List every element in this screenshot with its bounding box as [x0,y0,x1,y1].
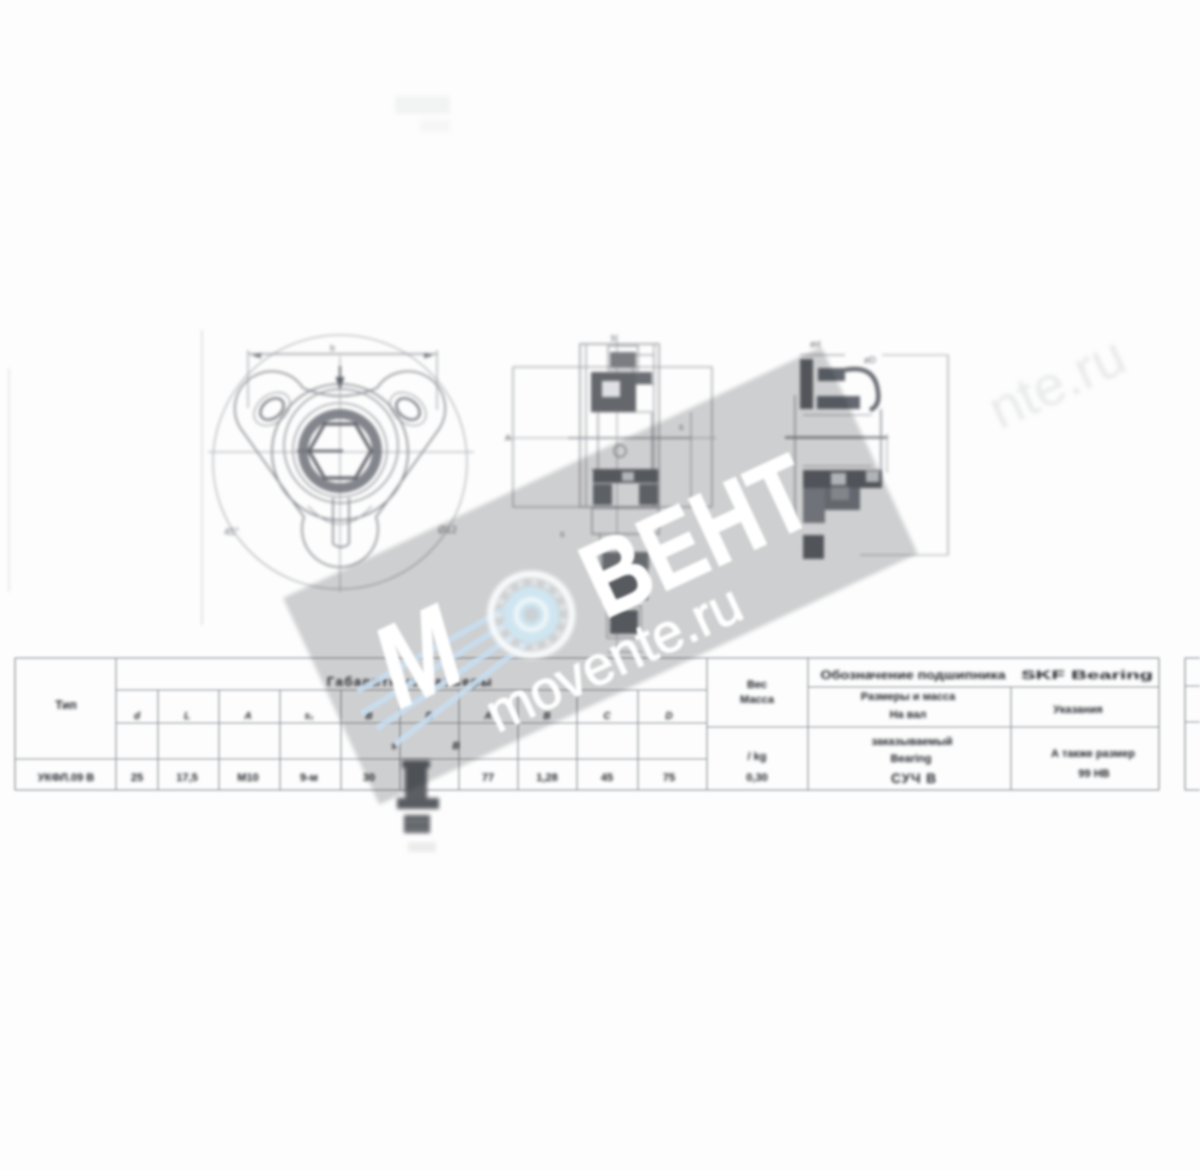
svg-text:b: b [330,343,335,353]
svg-text:C: C [603,711,611,722]
svg-text:A: A [505,433,511,443]
svg-text:СУЧ В: СУЧ В [891,771,937,786]
svg-text:М10: М10 [237,772,258,784]
svg-text:b: b [611,333,616,343]
svg-text:A: A [243,711,251,722]
svg-text:На вал: На вал [890,709,927,721]
svg-text:Масса: Масса [740,694,775,706]
svg-text:25: 25 [131,772,143,784]
svg-text:Вес: Вес [747,679,767,691]
svg-text:0,30: 0,30 [746,772,767,784]
svg-text:1,28: 1,28 [536,772,557,784]
svg-text:УКФЛ.09 В: УКФЛ.09 В [38,772,94,784]
svg-text:SKF Bearing: SKF Bearing [1021,668,1153,682]
svg-text:45°: 45° [224,527,239,538]
svg-text:Указания: Указания [1053,704,1102,716]
svg-text:заказываемый: заказываемый [871,736,952,748]
svg-text:ød: ød [810,339,821,349]
svg-text:45: 45 [601,772,613,784]
svg-text:9-м: 9-м [300,772,318,784]
svg-text:s₁: s₁ [304,711,314,722]
svg-text:Тип: Тип [55,698,77,712]
svg-text:99 НВ: 99 НВ [1078,768,1109,780]
svg-text:А также размер: А также размер [1051,748,1135,760]
svg-text:Bearing: Bearing [891,753,932,765]
svg-text:d: d [134,711,141,722]
svg-text:nte.ru: nte.ru [978,323,1134,441]
svg-text:77: 77 [482,772,494,784]
svg-text:Обозначение подшипника: Обозначение подшипника [821,668,1006,682]
svg-text:Размеры и масса: Размеры и масса [861,691,956,703]
svg-text:L: L [184,711,190,722]
svg-text:D: D [665,711,672,722]
svg-text:17,5: 17,5 [176,772,197,784]
svg-text:øD: øD [864,355,876,365]
svg-text:75: 75 [663,772,675,784]
svg-text:/ kg: / kg [748,751,767,763]
